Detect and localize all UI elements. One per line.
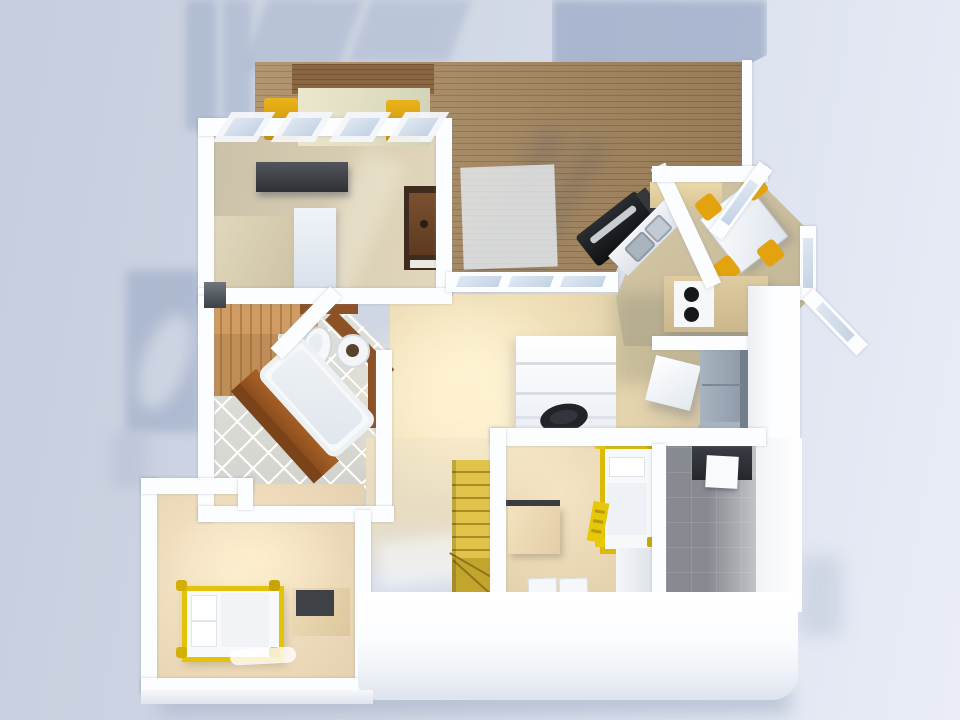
office-window-3-glass: [339, 118, 380, 136]
living-kids-wall: [490, 428, 766, 446]
floorplan-render: [0, 0, 960, 720]
south-wall-face: [358, 592, 798, 700]
office-side-table: [294, 208, 336, 292]
ladder-rung-3: [591, 529, 601, 534]
shadow-window-strip-a: [186, 0, 216, 130]
shadow-right-low: [798, 556, 842, 636]
bed-blanket: [221, 593, 269, 647]
bed-pillow-1: [191, 595, 217, 621]
kitchen-bay-wall-se: [802, 288, 868, 355]
office-window-2-glass: [281, 118, 322, 136]
cooktop-burner-1: [684, 287, 699, 302]
deck-fascia: [742, 60, 752, 170]
washer-lid: [705, 455, 739, 489]
stairs-side-shade: [452, 460, 456, 594]
bathroom-wall-right: [376, 350, 392, 518]
bay-window-e: [803, 238, 813, 288]
office-window-row: [214, 112, 450, 142]
ladder-rung-1: [595, 509, 605, 514]
office-wall-right: [436, 118, 452, 296]
sofa: [700, 342, 750, 430]
bed-pillow-2: [191, 621, 217, 647]
ladder-rung-2: [593, 519, 603, 524]
east-wall-lower: [756, 438, 802, 612]
office-window-2: [271, 112, 334, 142]
shadow-top-mid-a: [242, 0, 362, 70]
shadow-light-spot: [126, 307, 203, 417]
bed-post-3: [176, 647, 187, 658]
bed-post-1: [176, 580, 187, 591]
office-window-1: [213, 112, 276, 142]
bedroom-wall-left: [141, 478, 157, 694]
bedroom-wall-top: [141, 478, 253, 494]
kids-bath-wall: [652, 444, 666, 598]
bedroom-south-face: [141, 690, 373, 704]
shadow-left-wall: [126, 270, 200, 432]
sofa-cushion-seam: [702, 384, 742, 386]
kids-bed-blanket: [607, 483, 647, 535]
office-window-3: [329, 112, 392, 142]
desk-chair-seat: [549, 408, 579, 427]
storage-box: [292, 588, 350, 636]
piano-knob: [420, 220, 428, 228]
wall-shelf-dark: [204, 282, 226, 308]
kids-desk: [508, 506, 560, 554]
east-wall-upper: [748, 286, 800, 440]
office-window-4: [387, 112, 450, 142]
dresser-drawer-line-1: [516, 362, 616, 365]
office-sideboard: [256, 162, 348, 192]
office-window-1-glass: [223, 118, 264, 136]
hall-top-window-wall: [446, 272, 618, 292]
bath-sink: [336, 334, 370, 368]
kids-bed-pillow: [609, 457, 645, 477]
storage-box-opening: [296, 590, 334, 616]
dresser-drawer-line-2: [516, 392, 616, 395]
cooktop-burner-2: [684, 307, 699, 322]
hall-window-glass-1: [456, 276, 502, 287]
deck-rug: [460, 164, 558, 269]
bay-window-se: [816, 302, 855, 342]
shadow-top-mid-b: [349, 0, 472, 62]
office-window-4-glass: [397, 118, 438, 136]
sink-basin: [346, 344, 359, 357]
kids-desk-edge: [506, 500, 560, 506]
bedroom-wall-stub: [238, 478, 253, 510]
bed-post-2: [269, 580, 280, 591]
kids-wall-left: [490, 428, 506, 600]
hall-window-glass-2: [508, 276, 554, 287]
kids-dresser: [616, 548, 654, 592]
hall-window-glass-3: [560, 276, 606, 287]
office-wall-left: [198, 120, 214, 304]
